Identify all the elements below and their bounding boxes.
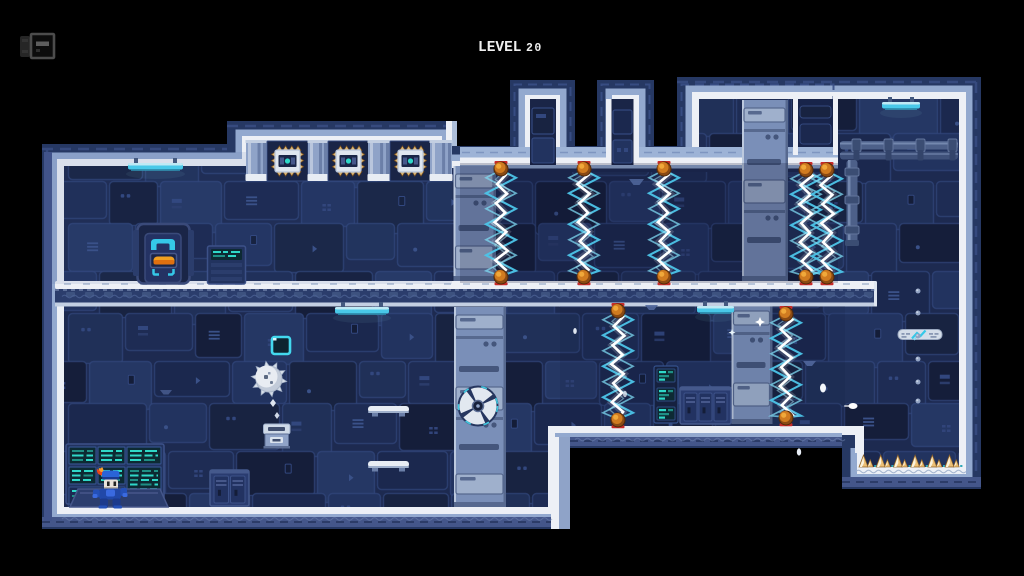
svg-text:LEVEL: LEVEL — [478, 40, 522, 56]
svg-text:20: 20 — [526, 42, 543, 55]
